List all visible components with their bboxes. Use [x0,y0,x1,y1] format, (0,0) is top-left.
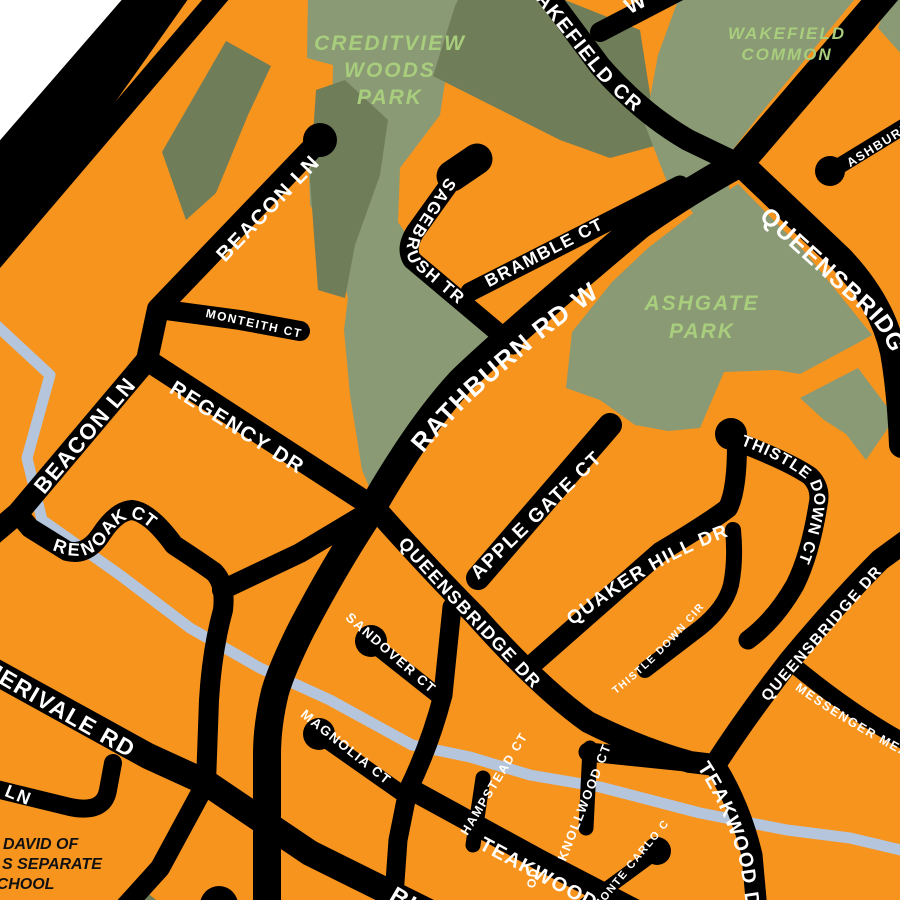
svg-text:CREDITVIEW: CREDITVIEW [314,32,466,55]
svg-text:S SEPARATE: S SEPARATE [2,856,103,873]
svg-text:OD: OD [524,866,541,889]
svg-text:COMMON: COMMON [741,45,832,64]
svg-text:SCHOOL: SCHOOL [0,876,54,893]
svg-text:WOODS: WOODS [344,59,436,82]
svg-text:DAVID OF: DAVID OF [3,836,79,853]
svg-text:ASHGATE: ASHGATE [643,292,759,315]
svg-text:PARK: PARK [669,320,735,343]
svg-text:PARK: PARK [357,86,423,109]
svg-text:WAKEFIELD: WAKEFIELD [728,24,846,43]
